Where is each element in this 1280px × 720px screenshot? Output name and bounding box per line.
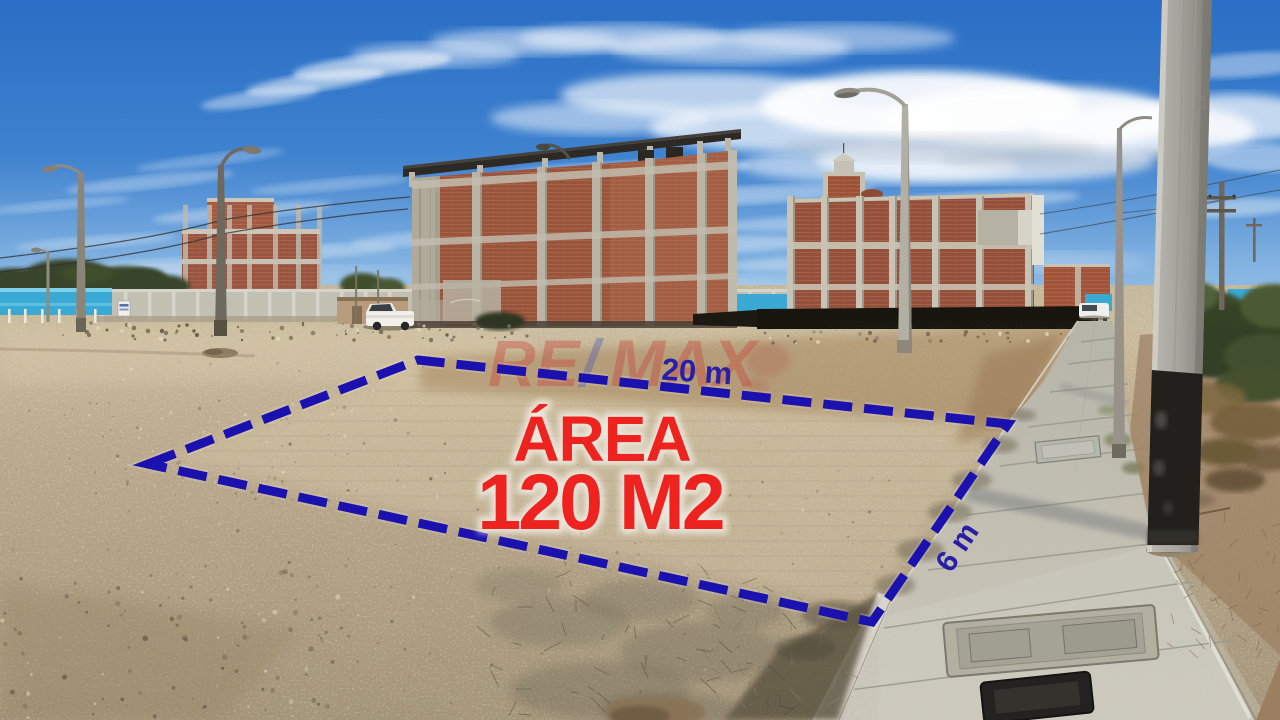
- svg-text:82: 82: [1193, 95, 1208, 110]
- svg-text:20 m: 20 m: [661, 352, 734, 392]
- svg-text:120 M2: 120 M2: [477, 457, 723, 546]
